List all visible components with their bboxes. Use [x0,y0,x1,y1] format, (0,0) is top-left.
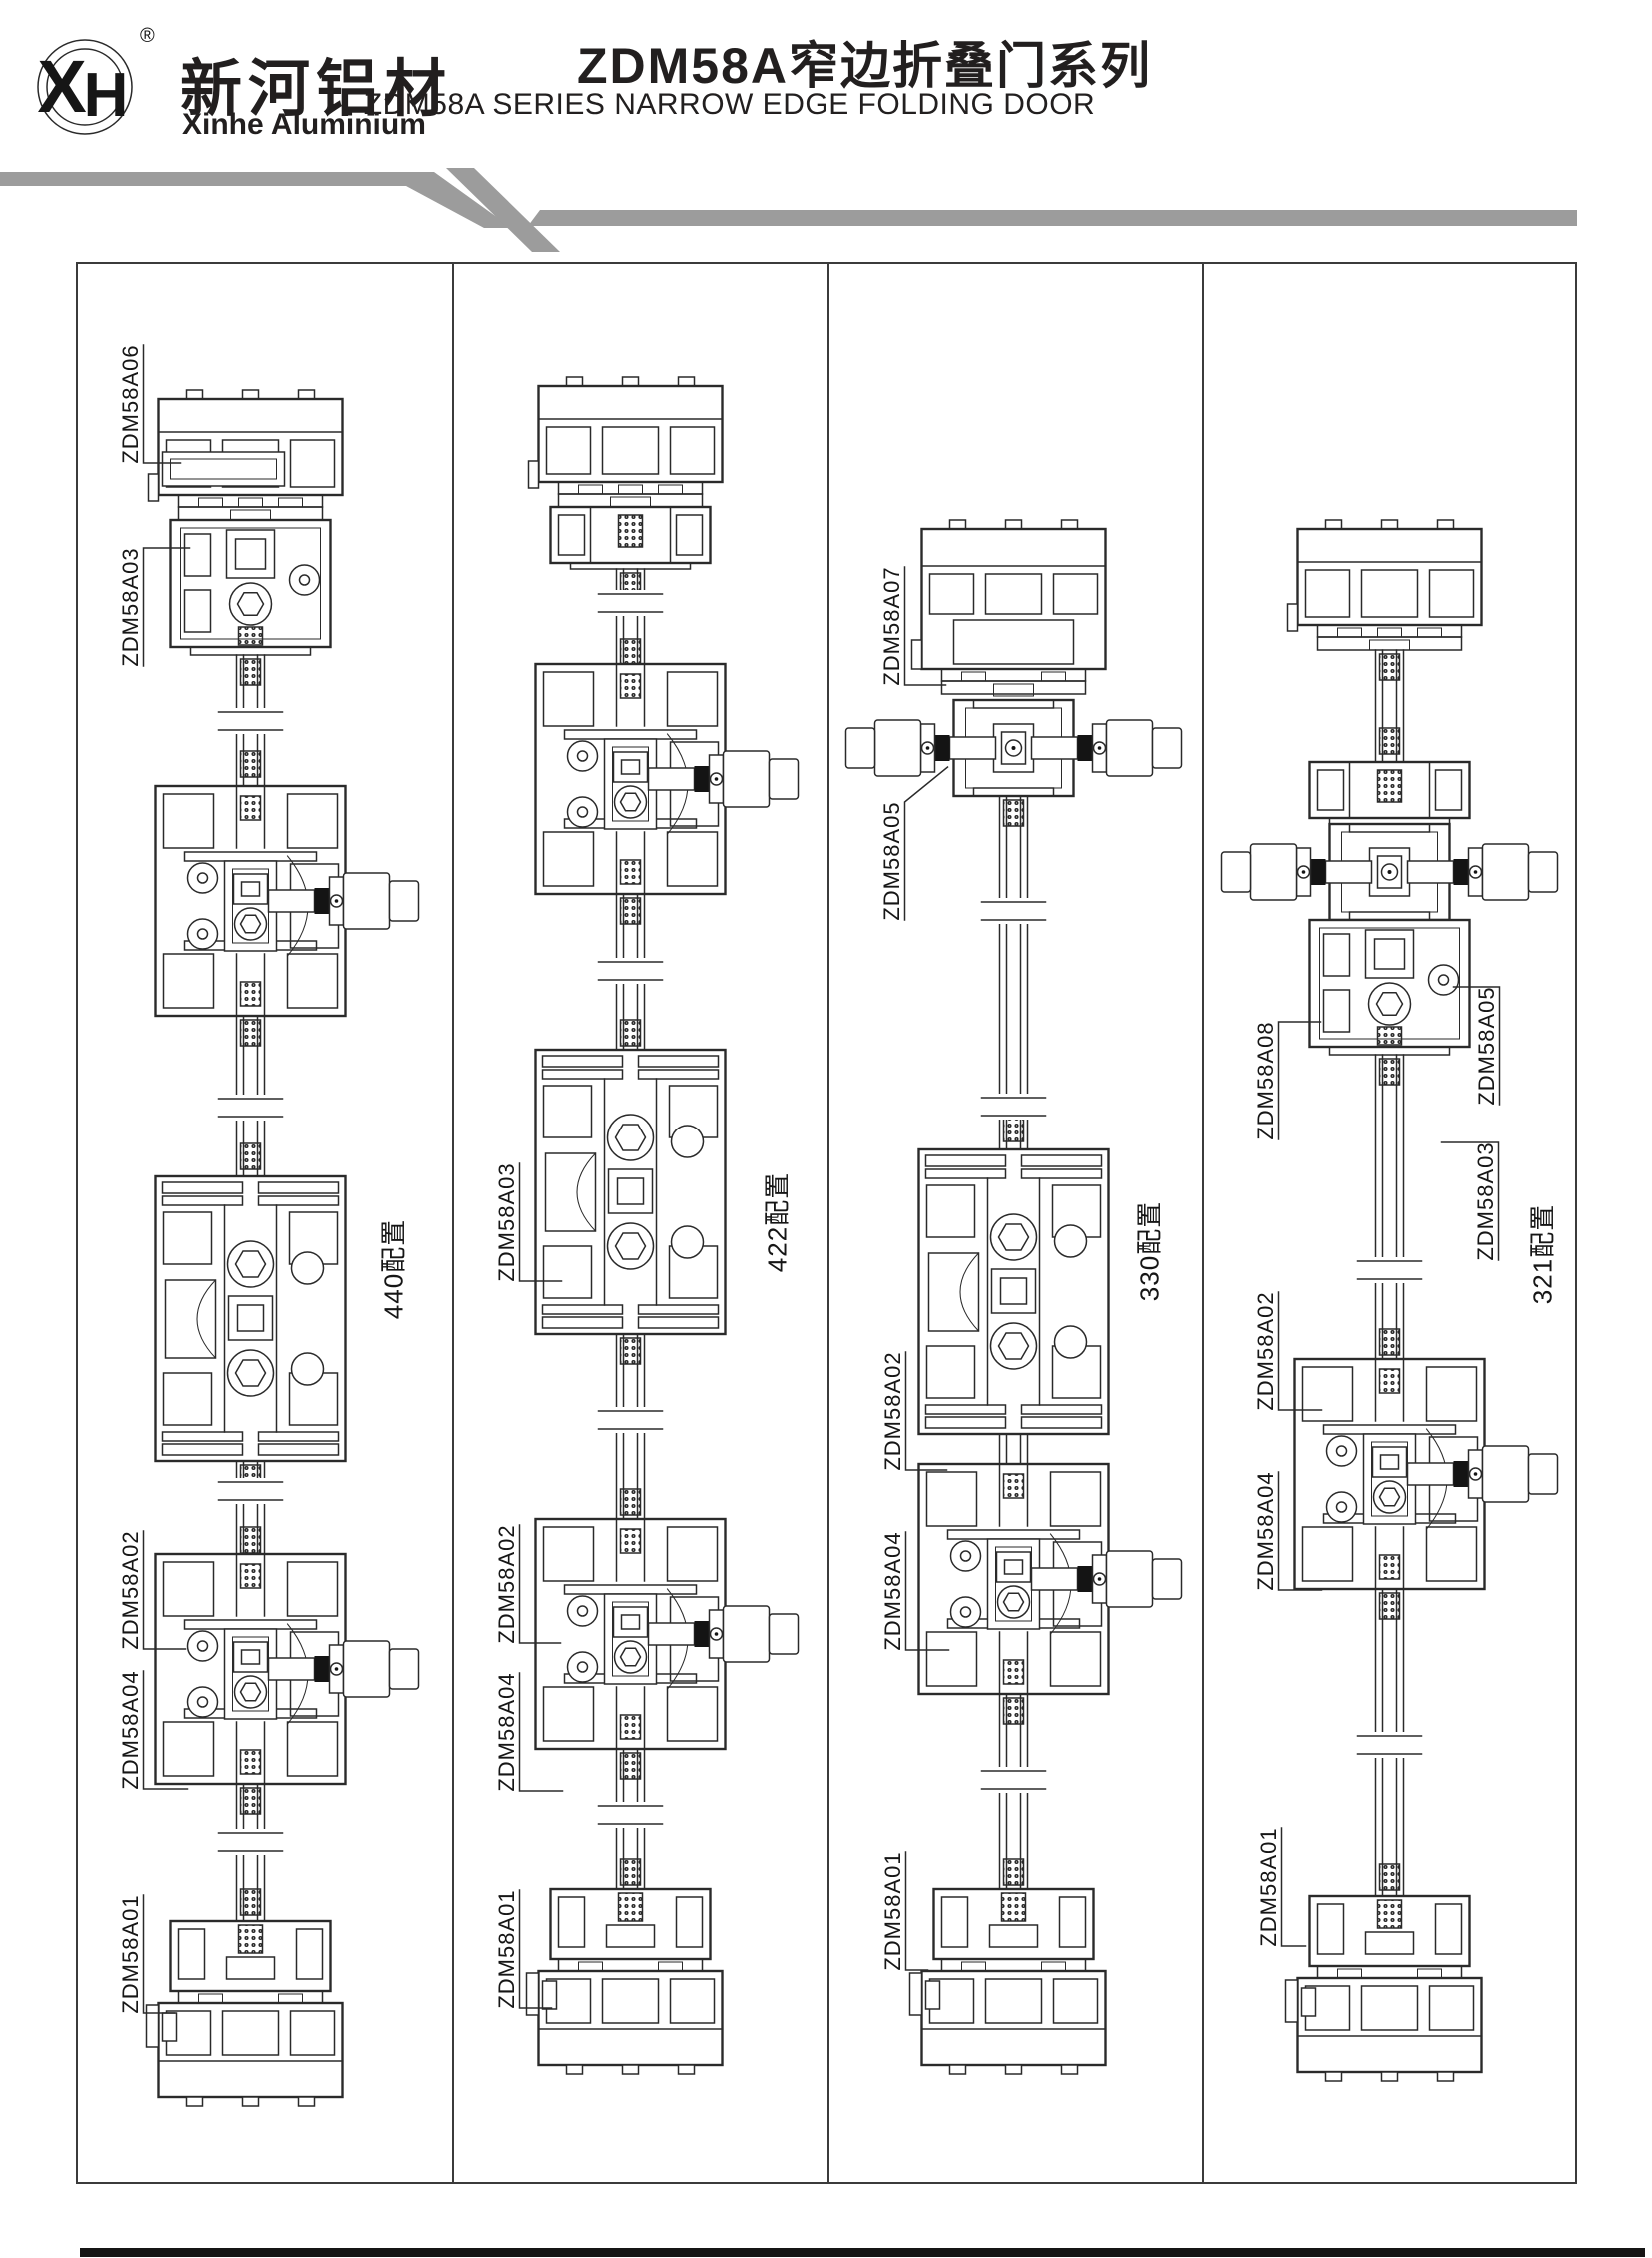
break-mark [217,1829,285,1855]
break-mark [217,708,285,734]
break-mark [980,898,1048,924]
sash-profile-zdm58a08 [1310,920,1470,1055]
config-label: 321配置 [1528,1204,1558,1304]
break-mark [1356,1257,1424,1283]
frame-head-profile [1288,520,1482,650]
part-label: ZDM58A05 [1474,986,1499,1105]
config-label: 330配置 [1135,1201,1165,1301]
sill-profile-zdm58a01 [527,1889,723,2074]
logo-x-glyph: X [37,45,86,128]
meeting-stile-module-zdm58a03 [536,1050,726,1334]
sill-profile-zdm58a01 [147,1921,343,2106]
registered-mark-icon: ® [140,25,155,47]
break-mark [980,1094,1048,1120]
glass-pane [1376,1055,1404,1359]
part-label: ZDM58A05 [879,801,904,920]
frame-head-profile-zdm58a07 [912,520,1106,696]
sill-profile-zdm58a01 [910,1889,1106,2074]
break-mark [1356,1732,1424,1758]
drawing-column-422: ZDM58A03 ZDM58A02 ZDM58A04 ZDM58A01 422配… [451,262,826,2184]
cover-profile-zdm58a06 [163,452,285,486]
break-mark [597,1407,665,1433]
break-mark [217,1478,285,1504]
company-logo: X H ® [18,10,188,160]
part-label: ZDM58A07 [879,566,904,685]
sash-profile-zdm58a03 [171,520,331,655]
glass-pane [1000,1434,1028,1464]
meeting-stile-module [919,1149,1109,1434]
page-subtitle: ZDM58A SERIES NARROW EDGE FOLDING DOOR [360,88,1099,122]
decorative-stripe [0,160,1652,270]
catalog-page: X H ® 新河铝材 Xinhe Aluminium ZDM58A窄边折叠门系列… [0,0,1652,2258]
stripe-bar-left [0,172,406,186]
break-mark [597,958,665,984]
part-label: ZDM58A02 [880,1351,905,1470]
break-mark [597,590,665,616]
sash-profile [1310,762,1470,824]
part-label: ZDM58A08 [1253,1021,1278,1139]
leader-line [905,767,948,920]
part-label: ZDM58A01 [118,1894,143,2013]
config-label: 440配置 [379,1219,409,1319]
part-label: ZDM58A03 [494,1162,519,1281]
part-label: ZDM58A03 [118,547,143,666]
part-label: ZDM58A06 [118,344,143,463]
part-label: ZDM58A01 [494,1889,519,2008]
break-mark [597,1802,665,1828]
part-label: ZDM58A03 [1473,1141,1498,1260]
drawing-column-440: ZDM58A06 ZDM58A03 ZDM58A02 ZDM58A04 ZDM5… [76,262,452,2184]
frame-head-profile [529,377,723,507]
sash-profile [551,507,711,569]
break-mark [217,1095,285,1121]
part-label: ZDM58A04 [118,1670,143,1789]
part-label: ZDM58A04 [1253,1471,1278,1590]
part-label: ZDM58A01 [880,1851,905,1970]
stripe-bar-right [528,210,1577,226]
leader-line [1282,1828,1306,1946]
meeting-stile-module [156,1176,346,1461]
part-label: ZDM58A01 [1256,1827,1281,1946]
part-label: ZDM58A02 [1253,1291,1278,1410]
part-label: ZDM58A04 [880,1531,905,1650]
config-label: 422配置 [763,1172,793,1272]
part-label: ZDM58A02 [118,1530,143,1649]
leader-line [906,1852,928,1970]
sill-profile-zdm58a01 [1286,1896,1482,2081]
part-label: ZDM58A04 [494,1672,519,1791]
drawing-column-321: ZDM58A08 ZDM58A05 ZDM58A03 ZDM58A02 ZDM5… [1201,262,1577,2184]
footer-bar [80,2248,1645,2257]
part-label: ZDM58A02 [494,1524,519,1643]
logo-h-glyph: H [84,61,129,130]
drawing-column-330: ZDM58A07 ZDM58A05 ZDM58A02 ZDM58A04 ZDM5… [826,262,1202,2184]
break-mark [980,1767,1048,1793]
